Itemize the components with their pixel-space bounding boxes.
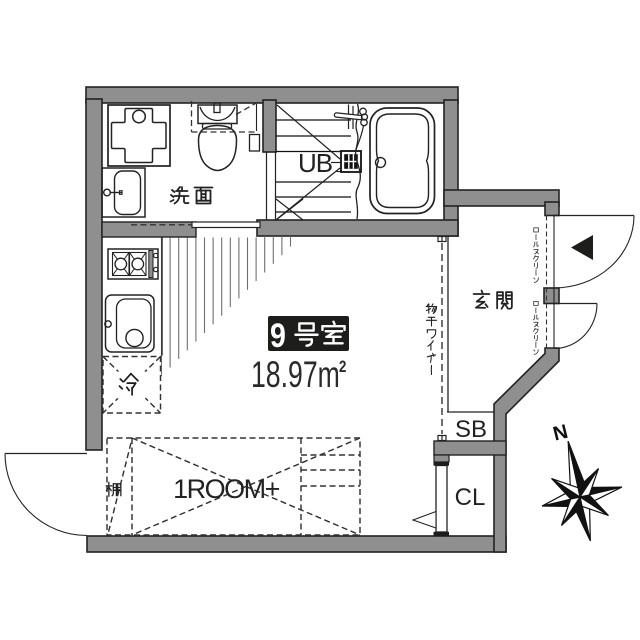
svg-text:2: 2: [339, 358, 346, 377]
svg-text:9: 9: [270, 317, 286, 355]
svg-text:18.97m: 18.97m: [251, 354, 340, 395]
svg-text:UB: UB: [298, 148, 332, 178]
svg-text:1ROOM+: 1ROOM+: [173, 474, 280, 504]
svg-text:SB: SB: [455, 416, 487, 443]
svg-text:CL: CL: [455, 484, 486, 511]
